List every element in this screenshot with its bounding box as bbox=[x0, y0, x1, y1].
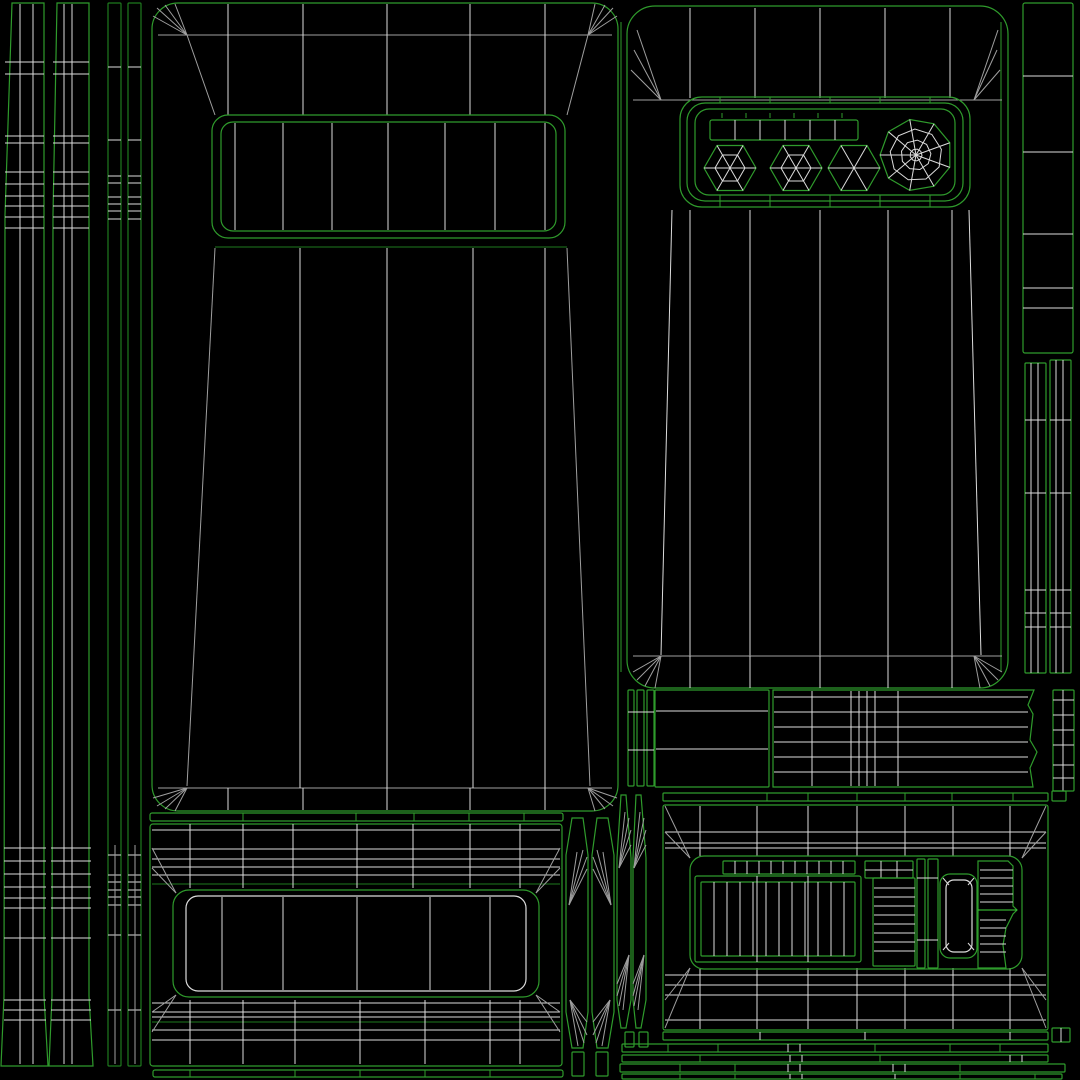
mid-rect-right bbox=[773, 690, 1037, 787]
uv-layout-canvas bbox=[0, 0, 1080, 1080]
panel-bottom-right bbox=[663, 791, 1066, 1040]
mid-rect-left bbox=[655, 690, 769, 787]
side-strip-left bbox=[566, 818, 588, 1076]
uv-wireframe-texture bbox=[0, 0, 1080, 1080]
trim-strip-left bbox=[617, 795, 634, 1047]
trim-strip-right bbox=[633, 795, 648, 1047]
side-strip-right bbox=[592, 818, 614, 1076]
right-column-strip-1 bbox=[1025, 363, 1046, 673]
bottom-trim-strips bbox=[620, 1028, 1070, 1079]
left-strip-3 bbox=[108, 3, 121, 1066]
panel-door-front bbox=[152, 3, 618, 811]
mid-hinge-strips bbox=[628, 690, 654, 786]
mid-strip-far-right bbox=[1053, 690, 1074, 791]
left-strip-1 bbox=[1, 3, 48, 1066]
panel-door-back bbox=[150, 813, 563, 1077]
left-strip-4 bbox=[128, 3, 141, 1066]
right-column-strip-2 bbox=[1050, 360, 1071, 673]
left-strip-2 bbox=[49, 3, 93, 1066]
machine-side-profile bbox=[690, 856, 1022, 969]
panel-control-top bbox=[621, 6, 1008, 688]
right-column-segmented bbox=[1023, 3, 1073, 353]
